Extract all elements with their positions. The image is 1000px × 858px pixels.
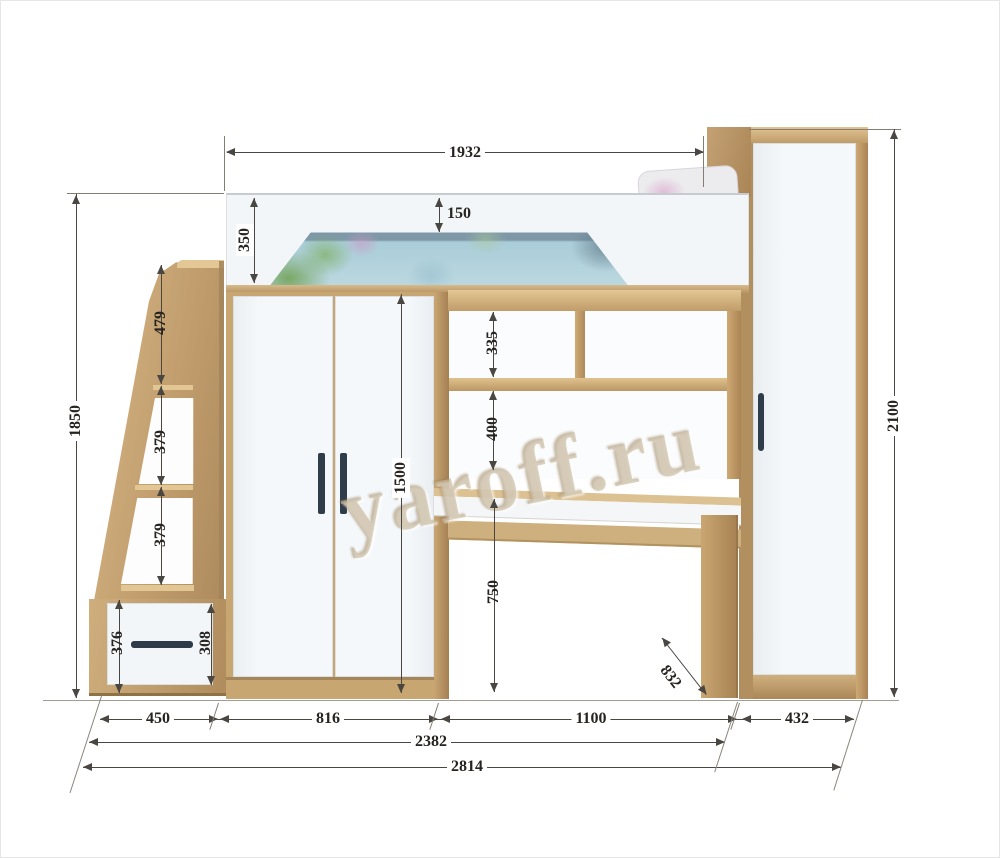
arrow-left-icon <box>226 148 235 156</box>
arrow-down-icon <box>157 576 165 585</box>
arrow-left-icon <box>83 763 92 771</box>
dim-label: 1500 <box>392 458 410 498</box>
arrow-up-icon <box>250 198 258 207</box>
dim-label: 379 <box>153 430 169 454</box>
arrow-down-icon <box>207 676 215 685</box>
arrow-down-icon <box>489 461 497 470</box>
arrow-up-icon <box>489 391 497 400</box>
arrow-down-icon <box>435 223 443 232</box>
dim-label: 335 <box>485 331 501 355</box>
dim-label: 1100 <box>571 710 610 728</box>
desk-leg-panel <box>701 515 738 698</box>
arrow-down-icon <box>490 683 498 692</box>
arrow-right-icon <box>845 715 854 723</box>
shelf-board <box>449 378 729 391</box>
dim-line <box>89 742 725 743</box>
dim-label: 376 <box>110 631 126 655</box>
extension-line <box>67 193 224 194</box>
dim-label: 400 <box>485 417 501 441</box>
arrow-down-icon <box>250 274 258 283</box>
arrow-up-icon <box>72 195 80 204</box>
arrow-left-icon <box>441 715 450 723</box>
arrow-left-icon <box>100 715 109 723</box>
arrow-up-icon <box>890 130 898 139</box>
arrow-right-icon <box>695 148 704 156</box>
center-wardrobe-plinth-edge <box>226 677 449 680</box>
mattress-bedding <box>267 229 631 287</box>
arrow-up-icon <box>115 600 123 609</box>
dim-line <box>76 194 77 698</box>
side-wardrobe-right-frame <box>856 143 868 699</box>
arrow-up-icon <box>397 295 405 304</box>
extension-line <box>224 136 225 191</box>
dim-label: 816 <box>312 710 344 728</box>
ladder-top-edge <box>177 260 224 268</box>
arrow-left-icon <box>89 738 98 746</box>
dim-label: 832 <box>657 663 684 692</box>
dim-label: 2382 <box>411 733 451 751</box>
arrow-down-icon <box>115 684 123 693</box>
dim-label: 1850 <box>67 401 85 441</box>
dim-line <box>254 198 255 283</box>
arrow-left-icon <box>742 715 751 723</box>
arrow-down-icon <box>157 375 165 384</box>
shelf-top-band <box>448 290 741 311</box>
drawer-handle <box>131 641 193 648</box>
dim-label: 379 <box>153 523 169 547</box>
dim-label: 150 <box>447 206 471 222</box>
extension-line <box>703 136 704 187</box>
arrow-down-icon <box>72 689 80 698</box>
arrow-up-icon <box>157 386 165 395</box>
arrow-up-icon <box>207 604 215 613</box>
dim-label: 2100 <box>885 396 903 436</box>
dim-label: 350 <box>236 224 254 256</box>
arrow-down-icon <box>397 684 405 693</box>
dim-label: 750 <box>486 580 502 604</box>
dim-label: 1932 <box>445 144 485 162</box>
arrow-up-icon <box>490 499 498 508</box>
arrow-down-icon <box>890 688 898 697</box>
extension-line <box>749 129 901 130</box>
arrow-down-icon <box>157 476 165 485</box>
dim-label: 2814 <box>447 758 487 776</box>
extension-diagonal <box>833 700 863 791</box>
arrow-up-icon <box>157 265 165 274</box>
step-edge <box>121 585 194 591</box>
arrow-left-icon <box>220 715 229 723</box>
arrow-down-icon <box>489 368 497 377</box>
shelf-divider <box>575 311 585 381</box>
dim-label: 432 <box>781 710 813 728</box>
dim-label: 450 <box>142 710 174 728</box>
dim-label: 479 <box>153 311 169 335</box>
side-wardrobe-plinth <box>753 673 856 699</box>
arrow-up-icon <box>489 312 497 321</box>
arrow-left-icon <box>659 635 671 647</box>
arrow-up-icon <box>157 487 165 496</box>
arrow-up-icon <box>435 198 443 207</box>
loft-bed-dimension-drawing: yaroff.ru 1932 150 350 2100 1850 <box>0 0 1000 858</box>
floor-line <box>43 700 899 701</box>
dim-label: 308 <box>198 631 214 655</box>
